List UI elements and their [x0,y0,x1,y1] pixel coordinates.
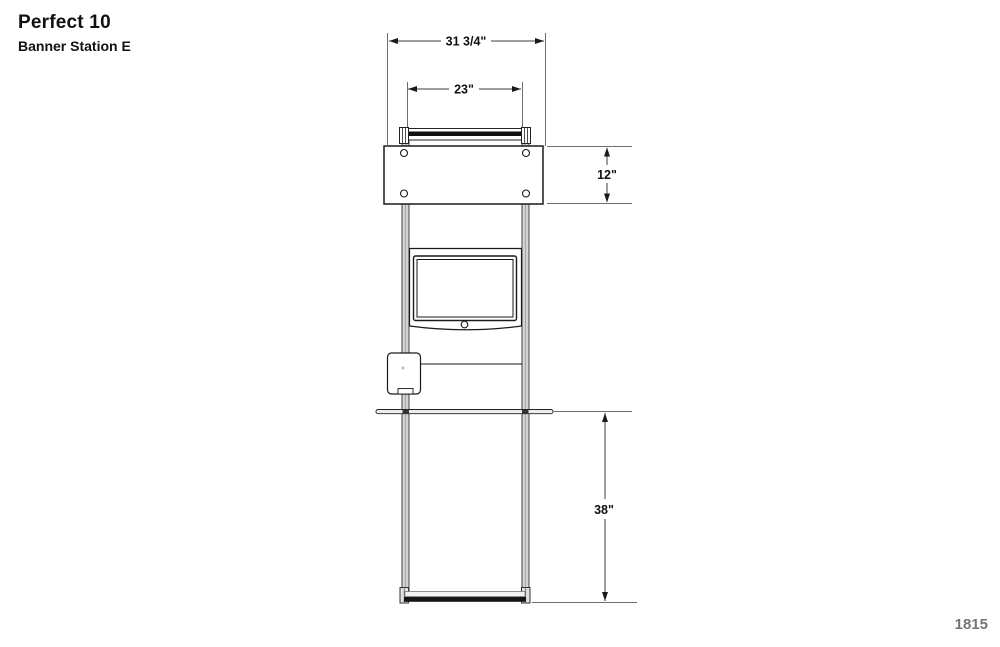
card-reader-box [388,353,523,394]
header-panel [384,146,543,204]
base-rail-light [405,592,525,597]
base-foot-rail [400,588,530,604]
base-rail-dark [404,597,526,602]
spec-sheet-page: Perfect 10 Banner Station E [0,0,1000,647]
page-number: 1815 [955,616,988,633]
panel-hole-bottom-right [523,190,530,197]
shelf-counter [376,410,553,414]
bar-bracket-left [400,128,409,144]
box-notch [398,389,413,395]
header-bar [400,128,531,144]
dimension-counter-height: 38" [532,412,637,603]
panel-hole-top-left [401,150,408,157]
dim-overall-width-label: 31 3/4" [446,35,487,49]
dim-header-panel-height-label: 12" [597,168,617,182]
right-post [522,140,529,592]
panel-hole-top-right [523,150,530,157]
bar-bracket-right [522,128,531,144]
dimension-header-bar-width: 23" [408,81,523,127]
panel-hole-bottom-left [401,190,408,197]
technical-drawing: 31 3/4" 23" 12" [0,0,1000,647]
monitor-screen [417,260,513,318]
dim-header-bar-width-label: 23" [454,83,474,97]
dim-counter-height-label: 38" [594,503,614,517]
monitor-enclosure [410,249,522,330]
monitor-button [461,321,468,328]
dimension-header-panel-height: 12" [547,147,632,204]
